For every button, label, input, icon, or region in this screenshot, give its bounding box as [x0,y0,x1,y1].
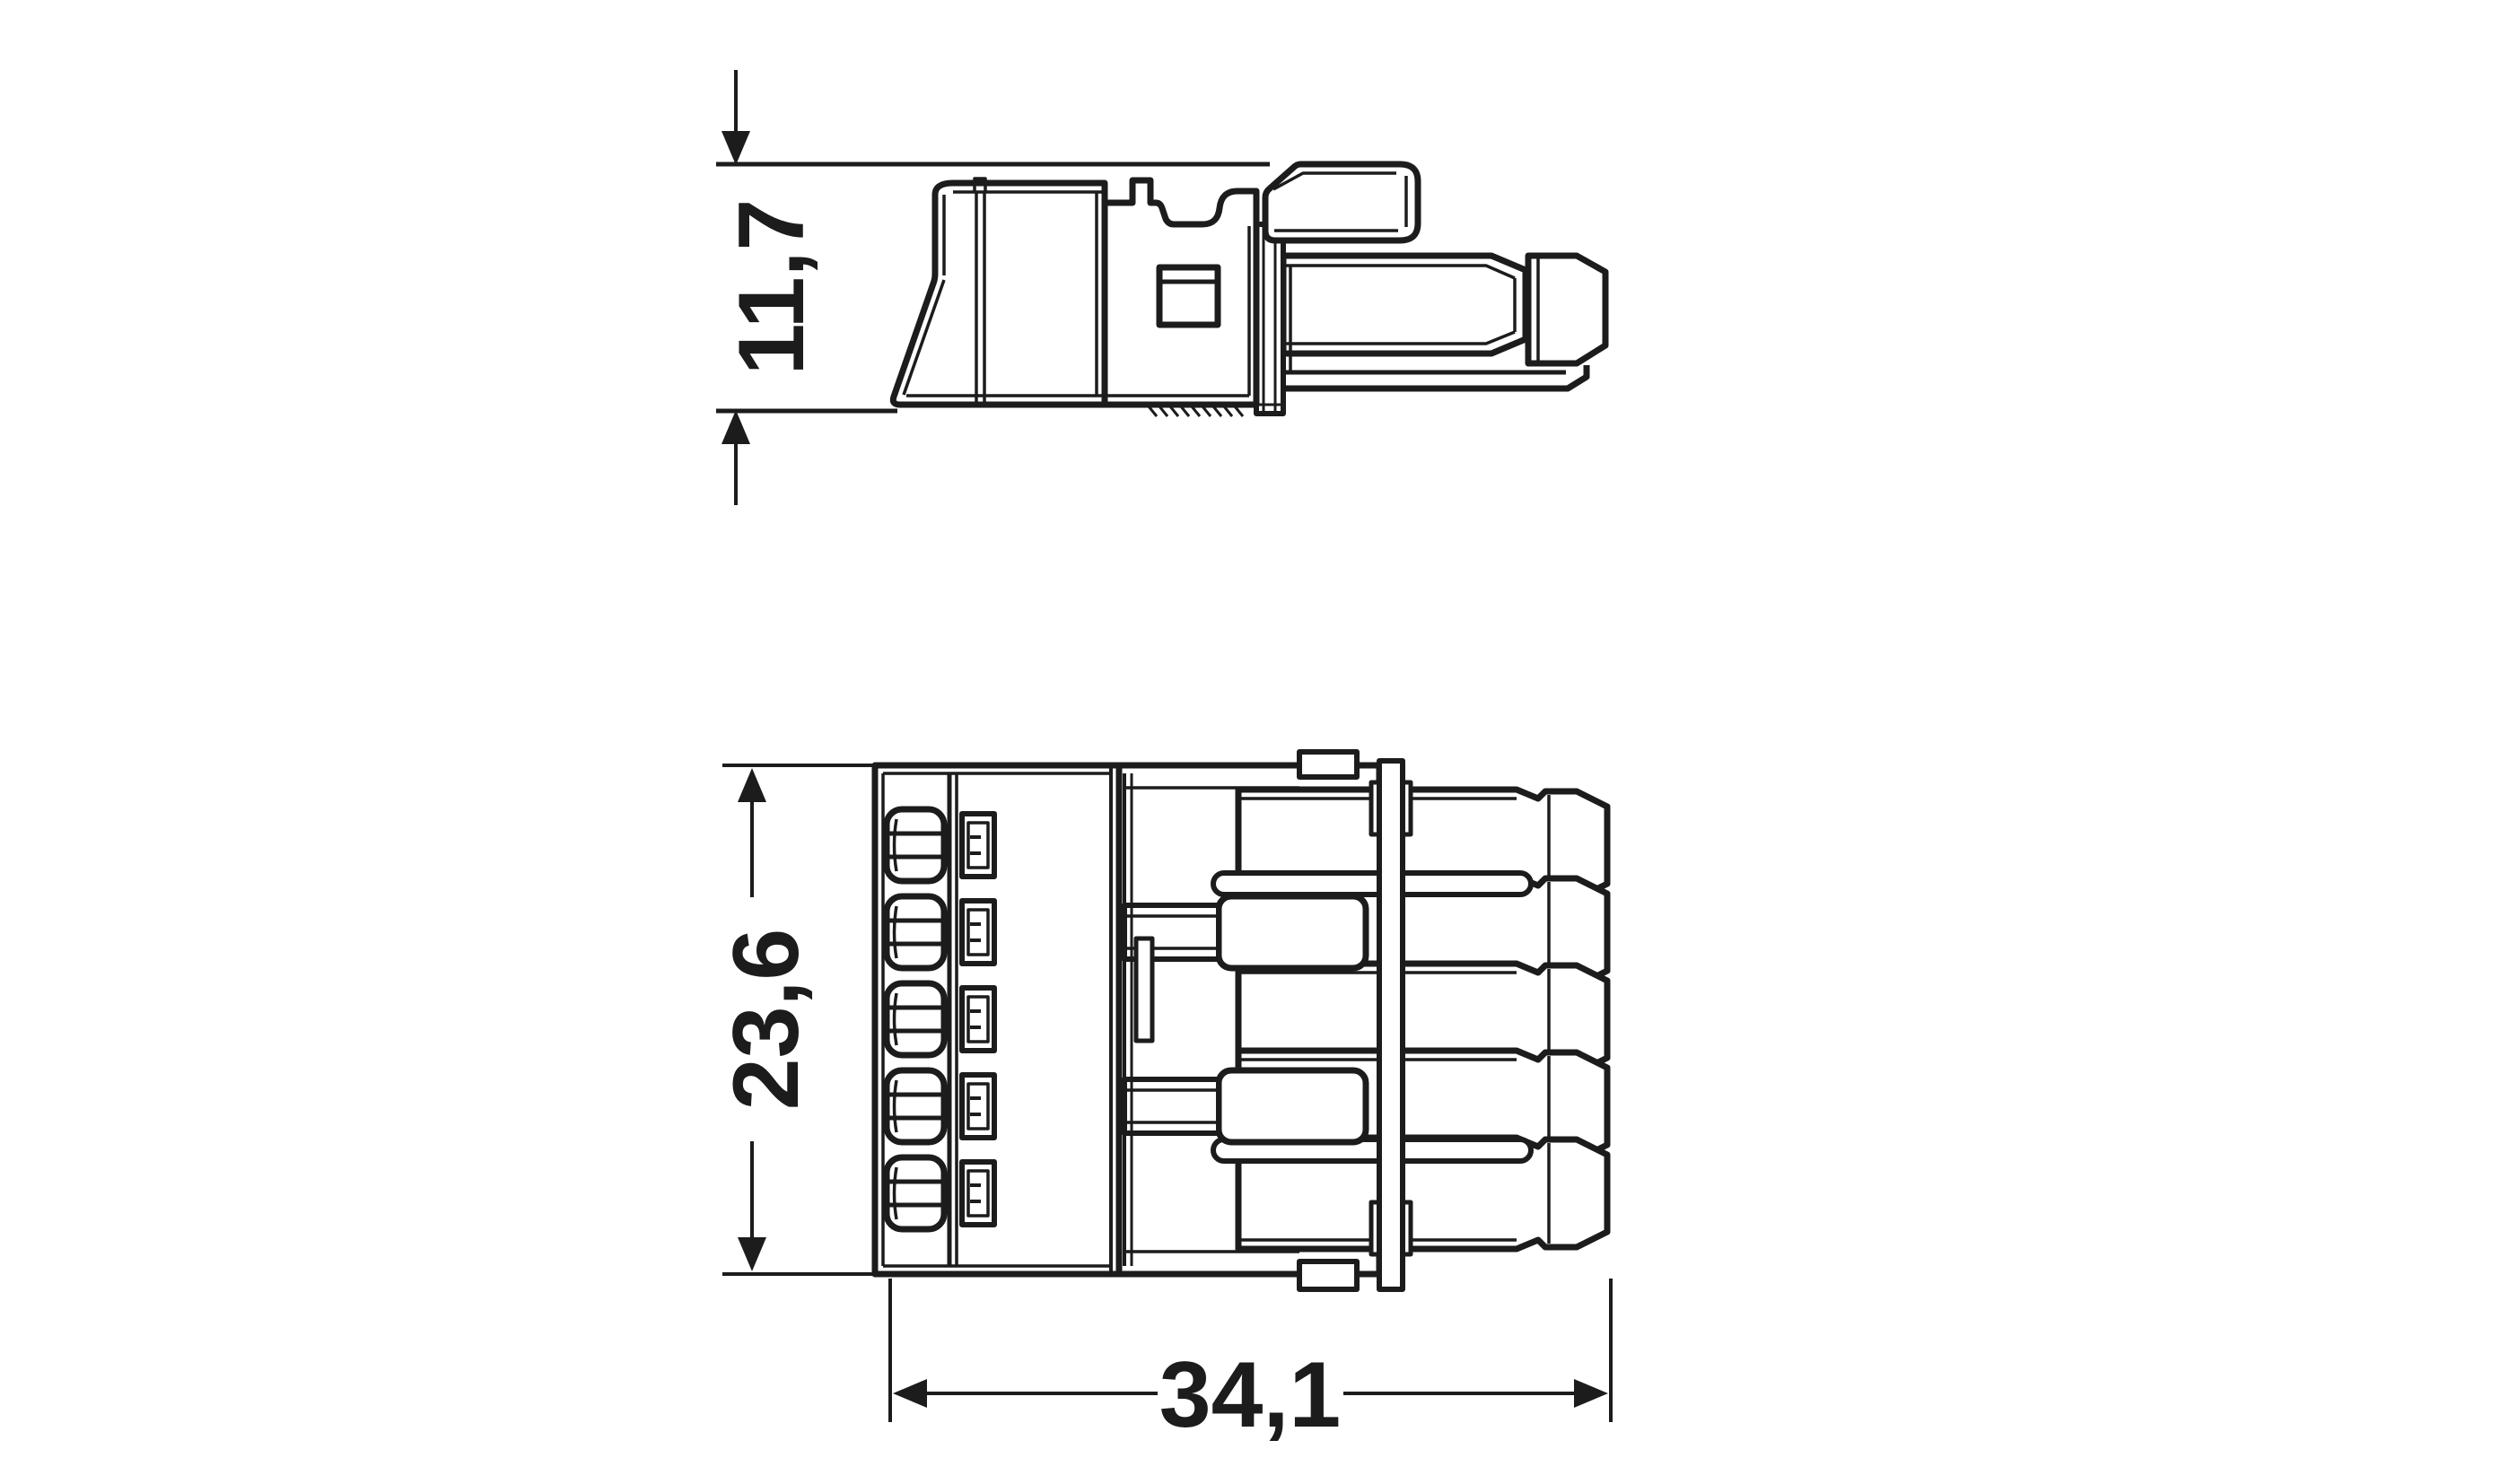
operating-slot [962,1162,994,1225]
dimension-label-front-height: 23,6 [714,929,818,1110]
drawing-canvas: 11,7 [0,0,2501,1484]
arrow-down-icon [738,1237,766,1271]
dimension-34-1: 34,1 [890,1279,1611,1447]
operating-slot [962,1075,994,1138]
side-view-latch-base [1105,180,1256,416]
side-view-housing [893,179,1105,405]
bottom-tab [1299,1261,1357,1289]
operating-slot [962,988,994,1051]
front-view-prongs [1238,790,1607,1249]
wire-port [887,1157,944,1229]
side-view-plug-tip [1528,256,1605,363]
dimension-label-side-height: 11,7 [720,199,824,376]
side-view-flange [1256,224,1283,414]
wire-port [887,809,944,881]
dimension-23-6: 23,6 [714,765,878,1274]
wire-port [887,1070,944,1142]
arrow-up-icon [721,410,750,444]
dimension-label-length: 34,1 [1159,1343,1341,1447]
front-view: 23,6 34,1 [714,752,1611,1447]
wire-entry-ports [887,809,944,1229]
operating-slot [962,901,994,964]
wire-port [887,896,944,968]
serration-marks [1149,406,1243,416]
operating-slots [962,814,994,1225]
side-view-latch-head [1265,164,1418,240]
side-view: 11,7 [716,70,1605,505]
top-tab [1299,752,1357,777]
side-view-plug-tube [1283,256,1526,354]
wire-port [887,983,944,1055]
connector-technical-drawing: 11,7 [0,0,2501,1484]
operating-slot [962,814,994,877]
arrow-up-icon [738,768,766,802]
arrow-right-icon [1574,1379,1608,1408]
arrow-down-icon [721,131,750,165]
arrow-left-icon [893,1379,927,1408]
